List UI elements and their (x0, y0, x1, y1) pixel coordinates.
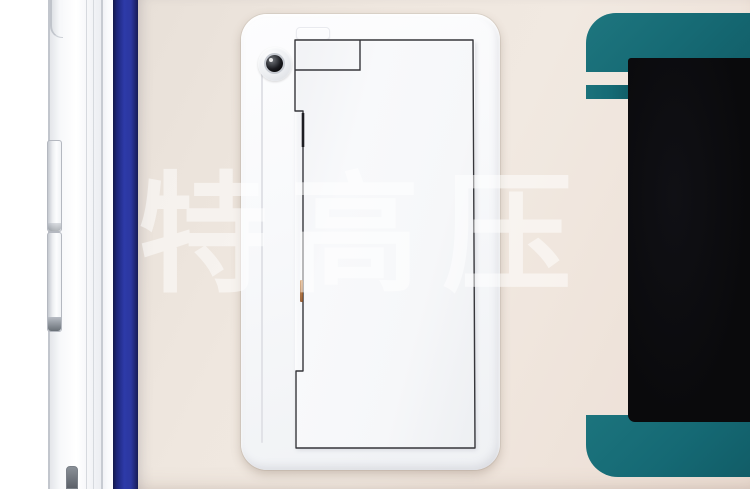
hinge-pin (66, 466, 78, 489)
hinge-shadow (48, 223, 61, 231)
lock-screw-boss (258, 47, 292, 81)
printer-cover-panel (241, 14, 500, 470)
lock-screw (266, 55, 283, 72)
blue-accent-stripe (113, 0, 138, 489)
rust-mark (300, 280, 303, 302)
vent-stripes (586, 85, 628, 406)
hinge-knuckle-bottom (47, 232, 62, 332)
edge-ridge-line (86, 0, 87, 489)
printer-door-outline (241, 14, 500, 470)
case-corner-curve (50, 0, 63, 38)
lcd-screen (628, 58, 750, 422)
edge-groove-line (101, 0, 103, 489)
device-photo: 特高压 (0, 0, 750, 489)
display-bezel-bottom (586, 415, 750, 477)
edge-ridge-line (93, 0, 94, 489)
vent-stripe (586, 85, 628, 99)
screw-highlight (269, 58, 273, 62)
hinge-knuckle-top (47, 140, 62, 232)
hinge-shadow (48, 317, 61, 331)
